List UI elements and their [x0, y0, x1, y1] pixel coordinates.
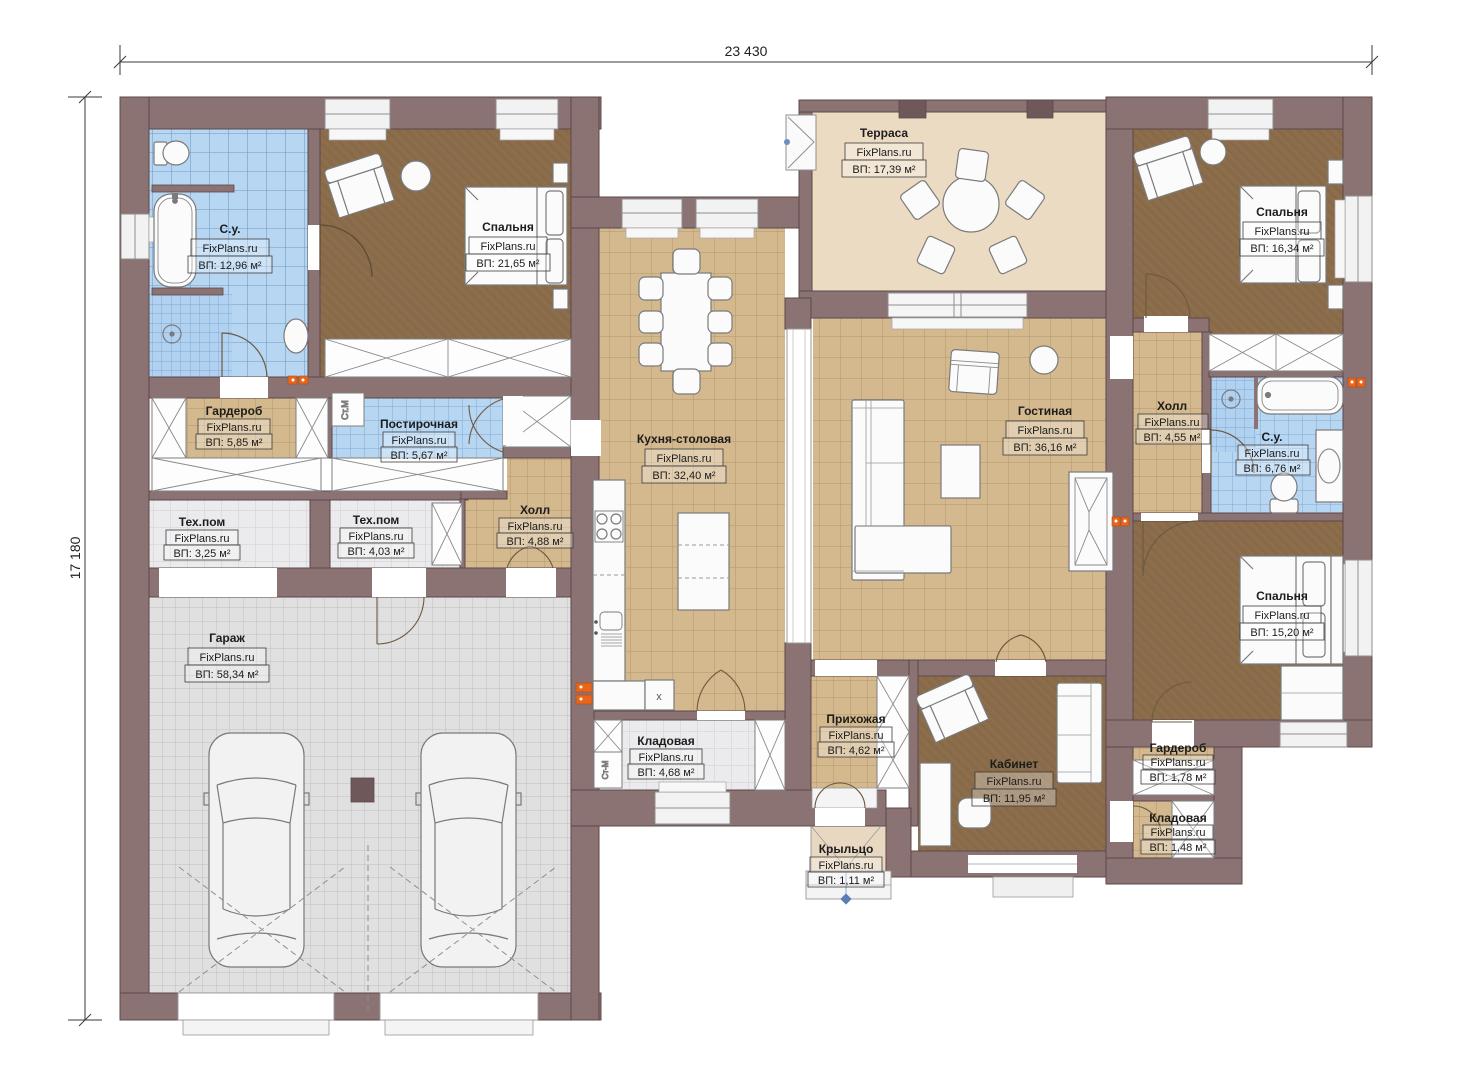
svg-text:ВП: 36,16 м²: ВП: 36,16 м²: [1013, 442, 1077, 454]
svg-text:ВП: 4,68 м²: ВП: 4,68 м²: [637, 767, 694, 779]
svg-text:FixPlans.ru: FixPlans.ru: [818, 860, 873, 872]
svg-text:Кладовая: Кладовая: [637, 734, 694, 748]
svg-text:Гараж: Гараж: [209, 631, 245, 645]
svg-text:FixPlans.ru: FixPlans.ru: [1150, 757, 1205, 769]
svg-text:ВП: 6,76 м²: ВП: 6,76 м²: [1243, 463, 1300, 475]
svg-text:Спальня: Спальня: [1256, 589, 1308, 603]
svg-text:ВП: 1,48 м²: ВП: 1,48 м²: [1149, 842, 1206, 854]
svg-text:ВП: 1,78 м²: ВП: 1,78 м²: [1149, 772, 1206, 784]
svg-text:ВП: 5,67 м²: ВП: 5,67 м²: [390, 450, 447, 462]
svg-text:ВП: 32,40 м²: ВП: 32,40 м²: [652, 470, 716, 482]
svg-text:Спальня: Спальня: [1256, 205, 1308, 219]
svg-text:ВП: 12,96 м²: ВП: 12,96 м²: [198, 260, 262, 272]
svg-text:ВП: 15,20 м²: ВП: 15,20 м²: [1250, 627, 1314, 639]
svg-text:ВП: 16,34 м²: ВП: 16,34 м²: [1250, 243, 1314, 255]
svg-text:FixPlans.ru: FixPlans.ru: [174, 533, 229, 545]
svg-text:FixPlans.ru: FixPlans.ru: [199, 652, 254, 664]
svg-text:Ст-М: Ст-М: [601, 760, 610, 779]
svg-text:ВП: 21,65 м²: ВП: 21,65 м²: [476, 258, 540, 270]
svg-text:ВП: 1,11 м²: ВП: 1,11 м²: [818, 875, 875, 887]
svg-text:Крыльцо: Крыльцо: [819, 842, 874, 856]
svg-text:Ст.М: Ст.М: [340, 400, 350, 420]
svg-text:FixPlans.ru: FixPlans.ru: [1244, 448, 1299, 460]
svg-text:Холл: Холл: [1157, 399, 1187, 413]
svg-text:ВП: 4,88 м²: ВП: 4,88 м²: [506, 536, 563, 548]
svg-text:С.у.: С.у.: [1262, 430, 1283, 444]
svg-text:С.у.: С.у.: [220, 222, 241, 236]
svg-text:Прихожая: Прихожая: [826, 712, 885, 726]
svg-text:Гостиная: Гостиная: [1018, 404, 1072, 418]
svg-text:Тех.пом: Тех.пом: [353, 513, 400, 527]
svg-text:Кабинет: Кабинет: [990, 757, 1039, 771]
svg-text:x: x: [656, 691, 662, 703]
svg-text:Гардероб: Гардероб: [1150, 741, 1207, 755]
svg-text:FixPlans.ru: FixPlans.ru: [1254, 226, 1309, 238]
svg-text:Холл: Холл: [520, 503, 550, 517]
svg-text:ВП: 58,34 м²: ВП: 58,34 м²: [195, 669, 259, 681]
svg-text:FixPlans.ru: FixPlans.ru: [638, 752, 693, 764]
svg-text:ВП: 4,03 м²: ВП: 4,03 м²: [347, 546, 404, 558]
svg-text:ВП: 11,95 м²: ВП: 11,95 м²: [983, 793, 1046, 805]
svg-text:ВП: 5,85 м²: ВП: 5,85 м²: [205, 437, 262, 449]
svg-text:FixPlans.ru: FixPlans.ru: [206, 422, 261, 434]
svg-text:FixPlans.ru: FixPlans.ru: [348, 531, 403, 543]
svg-text:ВП: 3,25 м²: ВП: 3,25 м²: [173, 548, 230, 560]
svg-text:FixPlans.ru: FixPlans.ru: [656, 453, 711, 465]
svg-text:Спальня: Спальня: [482, 220, 534, 234]
svg-text:ВП: 4,55 м²: ВП: 4,55 м²: [1143, 432, 1200, 444]
svg-text:Терраса: Терраса: [860, 126, 909, 140]
svg-text:FixPlans.ru: FixPlans.ru: [391, 435, 446, 447]
svg-text:Тех.пом: Тех.пом: [179, 515, 226, 529]
svg-text:FixPlans.ru: FixPlans.ru: [986, 776, 1041, 788]
svg-text:FixPlans.ru: FixPlans.ru: [856, 147, 911, 159]
svg-text:FixPlans.ru: FixPlans.ru: [202, 243, 257, 255]
svg-text:ВП: 4,62 м²: ВП: 4,62 м²: [827, 745, 884, 757]
svg-text:FixPlans.ru: FixPlans.ru: [1150, 827, 1205, 839]
svg-text:Кладовая: Кладовая: [1149, 811, 1206, 825]
svg-text:FixPlans.ru: FixPlans.ru: [1144, 417, 1199, 429]
svg-text:FixPlans.ru: FixPlans.ru: [507, 521, 562, 533]
svg-text:ВП: 17,39 м²: ВП: 17,39 м²: [852, 164, 916, 176]
svg-text:FixPlans.ru: FixPlans.ru: [1017, 425, 1072, 437]
svg-text:Гардероб: Гардероб: [206, 404, 263, 418]
svg-text:23 430: 23 430: [725, 43, 768, 59]
svg-text:FixPlans.ru: FixPlans.ru: [1254, 610, 1309, 622]
svg-text:Постирочная: Постирочная: [380, 417, 458, 431]
svg-text:Кухня-столовая: Кухня-столовая: [637, 432, 731, 446]
svg-text:FixPlans.ru: FixPlans.ru: [480, 241, 535, 253]
svg-text:17 180: 17 180: [67, 536, 83, 579]
svg-text:FixPlans.ru: FixPlans.ru: [828, 730, 883, 742]
